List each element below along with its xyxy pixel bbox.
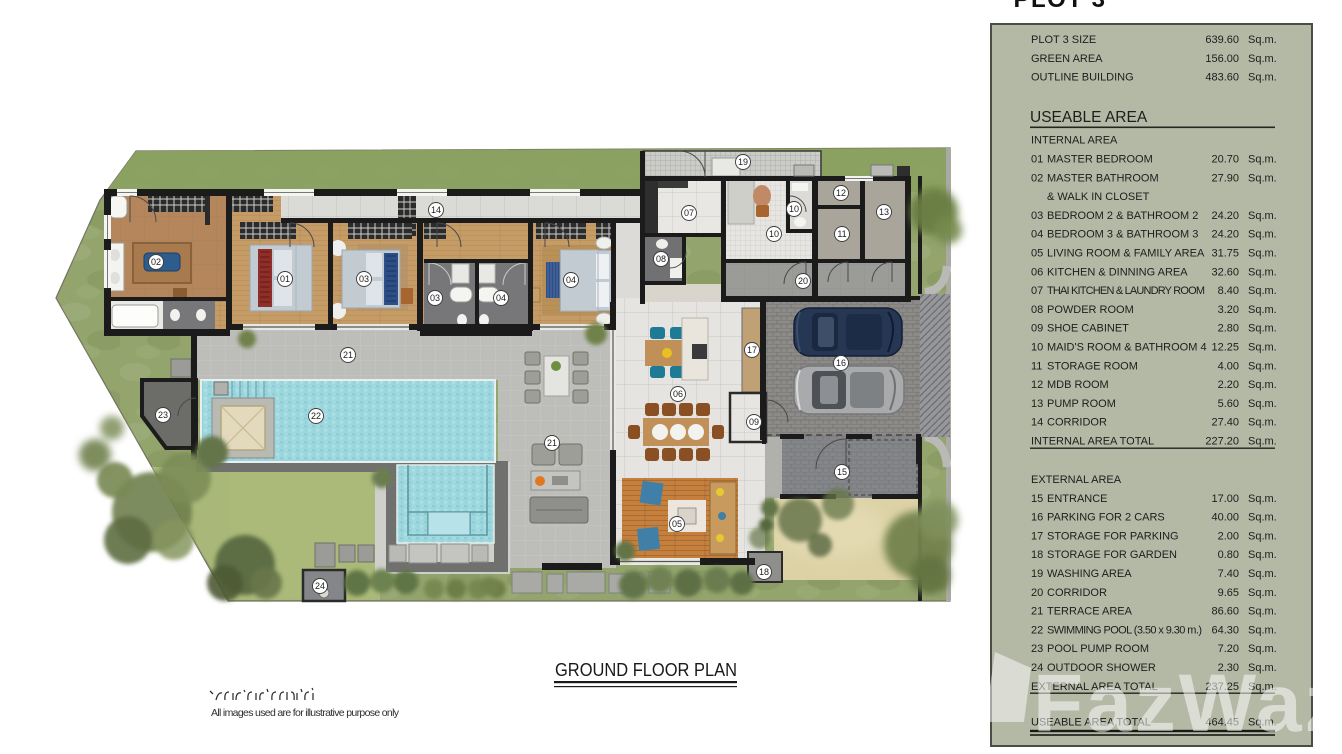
svg-text:22: 22 [311,411,321,421]
svg-text:Sq.m.: Sq.m. [1248,568,1277,580]
svg-text:STORAGE FOR GARDEN: STORAGE FOR GARDEN [1047,549,1177,561]
svg-text:GREEN AREA: GREEN AREA [1031,53,1103,65]
svg-text:PUMP ROOM: PUMP ROOM [1047,398,1116,410]
svg-text:GROUND FLOOR PLAN: GROUND FLOOR PLAN [555,659,737,680]
svg-text:9.65: 9.65 [1218,587,1239,599]
svg-text:18: 18 [759,567,769,577]
svg-text:11: 11 [837,229,846,239]
svg-text:THAI KITCHEN & LAUNDRY ROOM: THAI KITCHEN & LAUNDRY ROOM [1047,285,1205,297]
svg-text:CORRIDOR: CORRIDOR [1047,587,1107,599]
svg-text:15: 15 [1031,493,1043,505]
svg-text:Sq.m.: Sq.m. [1248,530,1277,542]
svg-text:Sq.m.: Sq.m. [1248,266,1277,278]
svg-text:Sq.m.: Sq.m. [1248,304,1277,316]
svg-text:Sq.m.: Sq.m. [1248,606,1277,618]
svg-text:LIVING ROOM & FAMILY AREA: LIVING ROOM & FAMILY AREA [1047,248,1205,260]
svg-text:7.40: 7.40 [1218,568,1239,580]
svg-text:12: 12 [1031,379,1043,391]
svg-text:09: 09 [1031,323,1043,335]
svg-text:03: 03 [1031,210,1043,222]
svg-text:Sq.m.: Sq.m. [1248,643,1277,655]
svg-text:07: 07 [684,208,694,218]
svg-text:MDB ROOM: MDB ROOM [1047,379,1109,391]
svg-text:STORAGE FOR PARKING: STORAGE FOR PARKING [1047,530,1179,542]
svg-text:16: 16 [836,358,846,368]
svg-text:2.20: 2.20 [1218,379,1239,391]
svg-text:15: 15 [837,467,847,477]
svg-text:639.60: 639.60 [1205,34,1239,46]
svg-text:04: 04 [1031,229,1043,241]
svg-text:Sq.m.: Sq.m. [1248,172,1277,184]
svg-text:Sq.m.: Sq.m. [1248,624,1277,636]
svg-text:FazWaz: FazWaz [1033,658,1342,749]
svg-text:02: 02 [1031,172,1043,184]
svg-text:12.25: 12.25 [1211,342,1239,354]
svg-text:0.80: 0.80 [1218,549,1239,561]
svg-text:BEDROOM 3 & BATHROOM 3: BEDROOM 3 & BATHROOM 3 [1047,229,1198,241]
svg-text:23: 23 [158,410,168,420]
svg-text:05: 05 [672,519,682,529]
svg-text:Sq.m.: Sq.m. [1248,342,1277,354]
svg-text:11: 11 [1031,360,1042,372]
svg-text:40.00: 40.00 [1211,512,1239,524]
svg-text:MAID'S ROOM & BATHROOM 4: MAID'S ROOM & BATHROOM 4 [1047,342,1207,354]
svg-text:01: 01 [280,274,290,284]
svg-text:24: 24 [315,581,325,591]
svg-text:5.60: 5.60 [1218,398,1239,410]
svg-text:22: 22 [1031,624,1043,636]
svg-text:32.60: 32.60 [1211,266,1239,278]
svg-text:24.20: 24.20 [1211,229,1239,241]
svg-text:PLOT 3: PLOT 3 [1013,0,1106,13]
svg-text:SHOE CABINET: SHOE CABINET [1047,323,1129,335]
svg-text:14: 14 [1031,417,1043,429]
svg-text:Sq.m.: Sq.m. [1248,587,1277,599]
svg-text:13: 13 [1031,398,1043,410]
svg-text:& WALK IN CLOSET: & WALK IN CLOSET [1047,191,1150,203]
svg-text:02: 02 [151,257,161,267]
svg-text:7.20: 7.20 [1218,643,1239,655]
svg-text:01: 01 [1031,154,1043,166]
svg-text:20.70: 20.70 [1211,154,1239,166]
svg-text:Sq.m.: Sq.m. [1248,285,1277,297]
svg-text:Sq.m.: Sq.m. [1248,549,1277,561]
svg-text:86.60: 86.60 [1211,606,1239,618]
svg-text:227.20: 227.20 [1205,436,1239,448]
svg-text:EXTERNAL AREA: EXTERNAL AREA [1031,474,1122,486]
svg-text:31.75: 31.75 [1211,248,1239,260]
svg-text:12: 12 [836,188,846,198]
svg-text:20: 20 [1031,587,1043,599]
svg-text:20: 20 [798,276,808,286]
svg-text:3.20: 3.20 [1218,304,1239,316]
svg-text:24.20: 24.20 [1211,210,1239,222]
svg-text:07: 07 [1031,285,1043,297]
svg-text:17: 17 [747,345,757,355]
svg-text:Sq.m.: Sq.m. [1248,210,1277,222]
svg-text:TERRACE AREA: TERRACE AREA [1047,606,1133,618]
svg-text:Sq.m.: Sq.m. [1248,34,1277,46]
svg-text:17: 17 [1031,530,1043,542]
svg-text:4.00: 4.00 [1218,360,1239,372]
svg-text:MASTER BEDROOM: MASTER BEDROOM [1047,154,1153,166]
svg-text:14: 14 [431,205,441,215]
svg-text:27.40: 27.40 [1211,417,1239,429]
svg-text:INTERNAL AREA TOTAL: INTERNAL AREA TOTAL [1031,436,1154,448]
svg-text:19: 19 [738,157,748,167]
svg-text:03: 03 [430,293,440,303]
svg-text:05: 05 [1031,248,1043,260]
svg-text:06: 06 [1031,266,1043,278]
svg-text:Sq.m.: Sq.m. [1248,154,1277,166]
svg-text:STORAGE ROOM: STORAGE ROOM [1047,360,1138,372]
svg-text:2.80: 2.80 [1218,323,1239,335]
svg-text:Sq.m.: Sq.m. [1248,53,1277,65]
svg-text:09: 09 [749,417,759,427]
svg-text:MASTER BATHROOM: MASTER BATHROOM [1047,172,1159,184]
svg-text:21: 21 [547,438,557,448]
svg-text:Sq.m.: Sq.m. [1248,493,1277,505]
svg-text:BEDROOM 2 & BATHROOM 2: BEDROOM 2 & BATHROOM 2 [1047,210,1198,222]
svg-text:2.00: 2.00 [1218,530,1239,542]
svg-text:Sq.m.: Sq.m. [1248,360,1277,372]
svg-text:483.60: 483.60 [1205,72,1239,84]
svg-text:CORRIDOR: CORRIDOR [1047,417,1107,429]
svg-text:KITCHEN & DINNING AREA: KITCHEN & DINNING AREA [1047,266,1188,278]
svg-text:23: 23 [1031,643,1043,655]
svg-text:POWDER ROOM: POWDER ROOM [1047,304,1134,316]
svg-text:13: 13 [879,207,889,217]
svg-text:USEABLE AREA: USEABLE AREA [1030,109,1148,126]
svg-text:21: 21 [343,350,353,360]
svg-text:Sq.m.: Sq.m. [1248,229,1277,241]
svg-text:08: 08 [656,254,666,264]
svg-text:SWIMMING POOL (3.50 x 9.30 m.): SWIMMING POOL (3.50 x 9.30 m.) [1047,624,1202,636]
svg-text:OUTLINE BUILDING: OUTLINE BUILDING [1031,72,1134,84]
svg-text:ENTRANCE: ENTRANCE [1047,493,1108,505]
svg-text:Sq.m.: Sq.m. [1248,379,1277,391]
svg-text:10: 10 [769,229,779,239]
svg-text:Sq.m.: Sq.m. [1248,72,1277,84]
svg-text:156.00: 156.00 [1205,53,1239,65]
svg-text:Sq.m.: Sq.m. [1248,512,1277,524]
svg-text:PARKING FOR 2 CARS: PARKING FOR 2 CARS [1047,512,1165,524]
svg-text:08: 08 [1031,304,1043,316]
svg-text:INTERNAL AREA: INTERNAL AREA [1031,135,1118,147]
svg-text:PLOT 3 SIZE: PLOT 3 SIZE [1031,34,1096,46]
svg-text:16: 16 [1031,512,1043,524]
svg-text:18: 18 [1031,549,1043,561]
svg-text:All images used are for illust: All images used are for illustrative pur… [211,707,400,719]
svg-text:21: 21 [1031,606,1043,618]
svg-text:WASHING AREA: WASHING AREA [1047,568,1132,580]
svg-text:Sq.m.: Sq.m. [1248,436,1277,448]
svg-text:27.90: 27.90 [1211,172,1239,184]
svg-text:64.30: 64.30 [1211,624,1239,636]
svg-text:06: 06 [673,389,683,399]
svg-text:04: 04 [566,275,576,285]
svg-text:03: 03 [359,274,369,284]
svg-text:10: 10 [1031,342,1043,354]
svg-text:Sq.m.: Sq.m. [1248,323,1277,335]
svg-text:Sq.m.: Sq.m. [1248,398,1277,410]
svg-text:Sq.m.: Sq.m. [1248,248,1277,260]
svg-text:8.40: 8.40 [1218,285,1239,297]
svg-text:10: 10 [789,204,799,214]
svg-text:17.00: 17.00 [1211,493,1239,505]
svg-text:04: 04 [496,293,506,303]
svg-text:19: 19 [1031,568,1043,580]
svg-text:Sq.m.: Sq.m. [1248,417,1277,429]
svg-text:POOL PUMP ROOM: POOL PUMP ROOM [1047,643,1149,655]
